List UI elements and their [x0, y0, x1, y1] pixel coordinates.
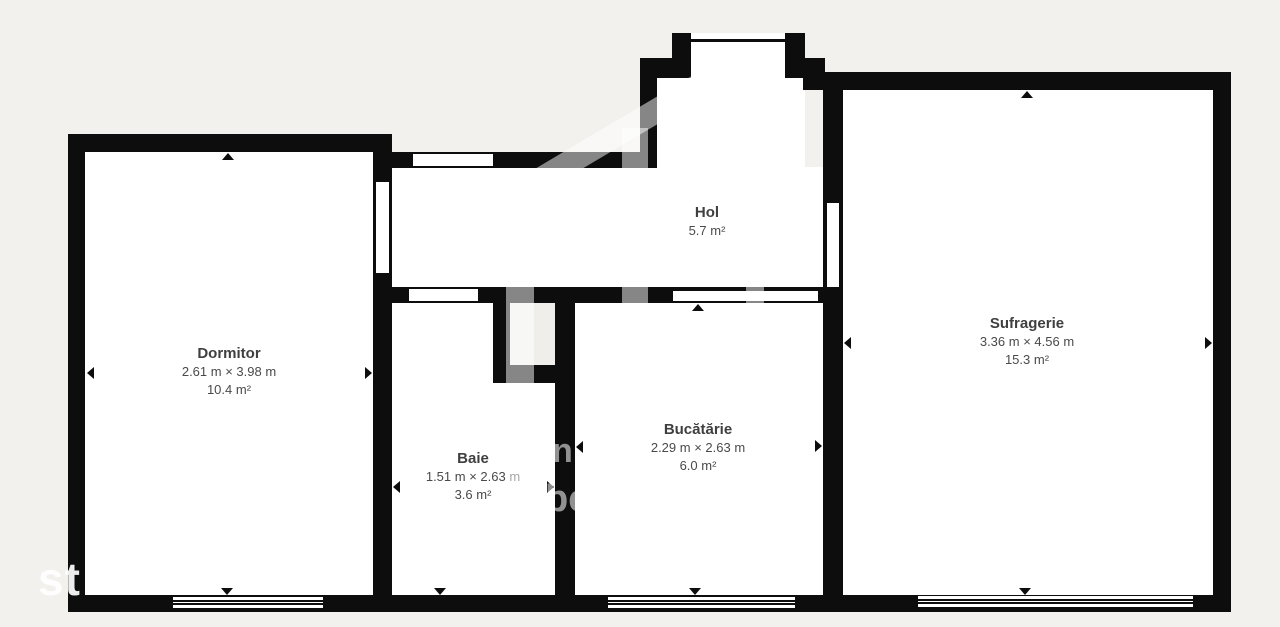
- window-pane-line: [173, 603, 323, 605]
- room-hol-bump-lower: [657, 78, 805, 173]
- marker-sufragerie-top-icon: [1021, 91, 1033, 98]
- wall-outer-left: [68, 134, 85, 612]
- window-dormitor-bottom: [173, 597, 323, 608]
- marker-bucatarie-right-icon: [815, 440, 822, 452]
- marker-baie-left-icon: [393, 481, 400, 493]
- room-name: Sufragerie: [980, 314, 1074, 333]
- marker-bucatarie-top-icon: [692, 304, 704, 311]
- window-pane-line: [608, 600, 795, 602]
- label-sufragerie: Sufragerie 3.36 m × 4.56 m 15.3 m²: [980, 314, 1074, 369]
- wall-dormitor-top: [68, 134, 392, 152]
- wall-shaft-bottom: [493, 365, 555, 383]
- wall-bump-step-right: [803, 58, 825, 90]
- opening-hol-bucatarie: [673, 291, 818, 301]
- wall-hol-sufragerie: [823, 90, 843, 595]
- door-hol-sufragerie: [827, 203, 839, 287]
- room-area: 15.3 m²: [980, 351, 1074, 369]
- window-pane-line: [173, 600, 323, 602]
- door-baie: [409, 289, 478, 301]
- marker-bucatarie-left-icon: [576, 441, 583, 453]
- marker-bucatarie-bottom-icon: [689, 588, 701, 595]
- room-area: 5.7 m²: [689, 222, 726, 240]
- window-bucatarie-bottom: [608, 597, 795, 608]
- marker-sufragerie-bottom-icon: [1019, 588, 1031, 595]
- room-area: 3.6 m²: [426, 486, 520, 504]
- label-bucatarie: Bucătărie 2.29 m × 2.63 m 6.0 m²: [651, 420, 745, 475]
- marker-baie-right-icon: [547, 481, 554, 493]
- room-name: Baie: [426, 449, 520, 468]
- marker-sufragerie-left-icon: [844, 337, 851, 349]
- room-dimensions: 3.36 m × 4.56 m: [980, 333, 1074, 351]
- label-dormitor: Dormitor 2.61 m × 3.98 m 10.4 m²: [182, 344, 276, 399]
- room-dimensions: 1.51 m × 2.63 m: [426, 468, 520, 486]
- room-name: Dormitor: [182, 344, 276, 363]
- marker-dormitor-right-icon: [365, 367, 372, 379]
- marker-dormitor-top-icon: [222, 153, 234, 160]
- window-pane-line: [918, 602, 1193, 604]
- floorplan-canvas: Dormitor 2.61 m × 3.98 m 10.4 m² Hol 5.7…: [0, 0, 1280, 627]
- window-pane-line: [608, 603, 795, 605]
- ventilation-shaft: [510, 303, 555, 365]
- window-hol-bump-top: [691, 33, 785, 47]
- room-dimensions: 2.29 m × 2.63 m: [651, 439, 745, 457]
- marker-dormitor-left-icon: [87, 367, 94, 379]
- wall-bump-post-left: [672, 33, 691, 78]
- marker-sufragerie-right-icon: [1205, 337, 1212, 349]
- window-pane-line: [918, 599, 1193, 601]
- wall-baie-bucatarie: [555, 287, 575, 595]
- room-area: 10.4 m²: [182, 381, 276, 399]
- wall-sufragerie-right: [1213, 72, 1231, 612]
- label-hol: Hol 5.7 m²: [689, 203, 726, 240]
- room-dimensions: 2.61 m × 3.98 m: [182, 363, 276, 381]
- window-hol-top: [413, 154, 493, 166]
- room-name: Hol: [689, 203, 726, 222]
- window-pane-line: [691, 39, 785, 42]
- wall-bump-cap: [640, 58, 672, 78]
- wall-bump-post-right: [785, 33, 805, 78]
- door-dormitor-hol: [376, 182, 389, 273]
- marker-dormitor-bottom-icon: [221, 588, 233, 595]
- room-name: Bucătărie: [651, 420, 745, 439]
- wall-sufragerie-top: [805, 72, 1231, 90]
- room-hol-main: [392, 167, 823, 288]
- marker-baie-bottom-icon: [434, 588, 446, 595]
- window-sufragerie-bottom: [918, 596, 1193, 607]
- label-baie: Baie 1.51 m × 2.63 m 3.6 m²: [426, 449, 520, 504]
- room-area: 6.0 m²: [651, 457, 745, 475]
